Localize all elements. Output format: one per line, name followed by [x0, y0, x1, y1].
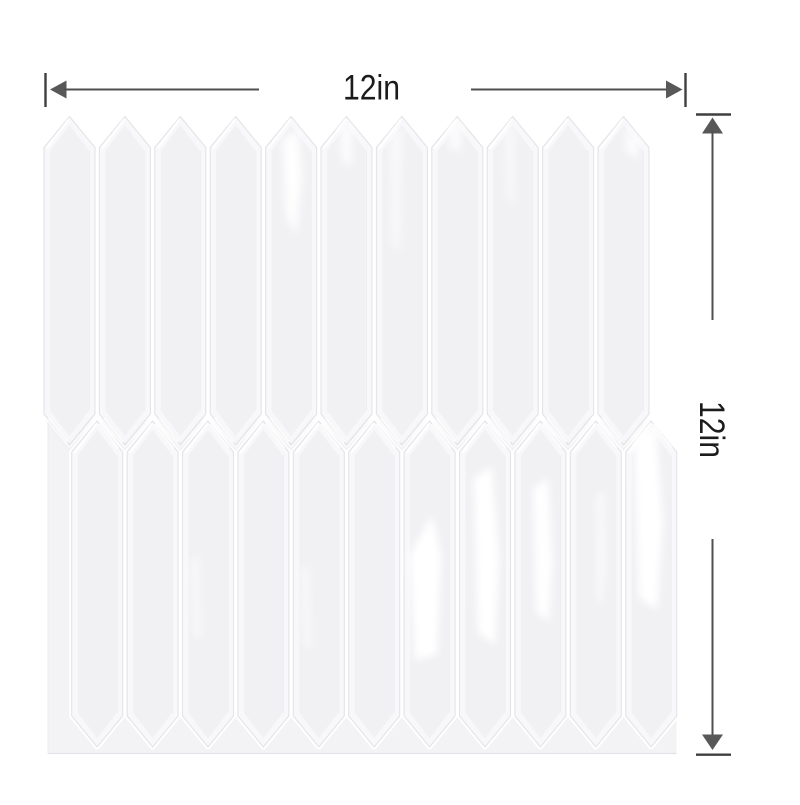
svg-text:12in: 12in: [343, 69, 400, 108]
svg-text:12in: 12in: [692, 401, 731, 458]
